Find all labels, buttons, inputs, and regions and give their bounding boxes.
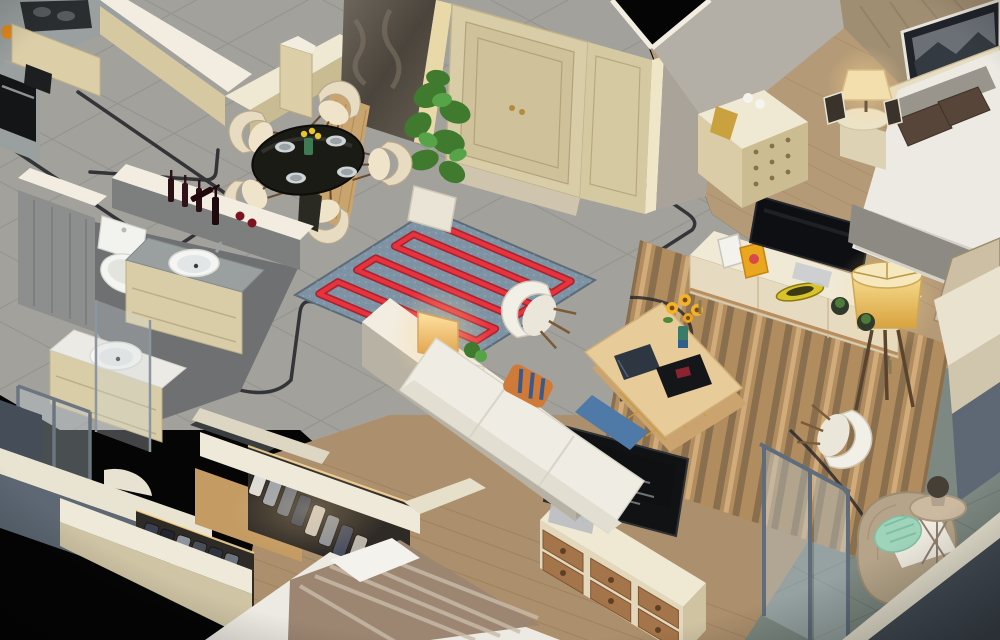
vignette [0,0,1000,640]
apartment-render [0,0,1000,640]
render-canvas [0,0,1000,640]
